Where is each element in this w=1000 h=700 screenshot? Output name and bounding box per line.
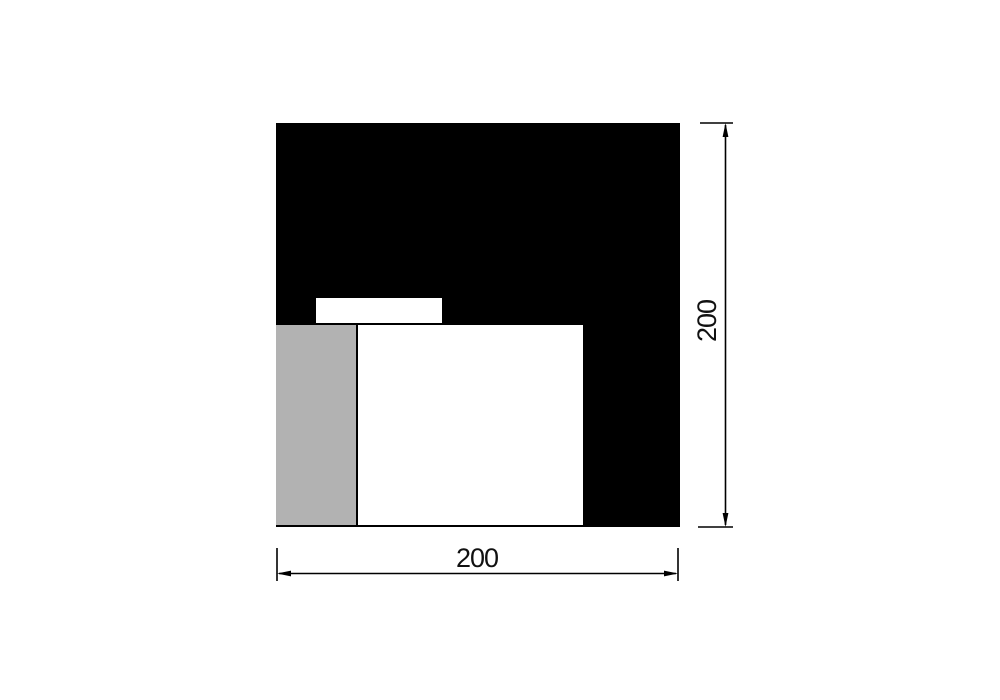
horizontal-dim-arrow-right-icon <box>664 571 678 577</box>
dimension-layer: 200 200 <box>0 0 1000 700</box>
width-dimension-label: 200 <box>456 543 498 573</box>
vertical-dim-arrow-up-icon <box>723 123 729 137</box>
horizontal-dim-arrow-left-icon <box>277 571 291 577</box>
height-dimension-label: 200 <box>692 300 722 342</box>
vertical-dim-arrow-down-icon <box>723 513 729 527</box>
drawing-canvas: 200 200 <box>0 0 1000 700</box>
